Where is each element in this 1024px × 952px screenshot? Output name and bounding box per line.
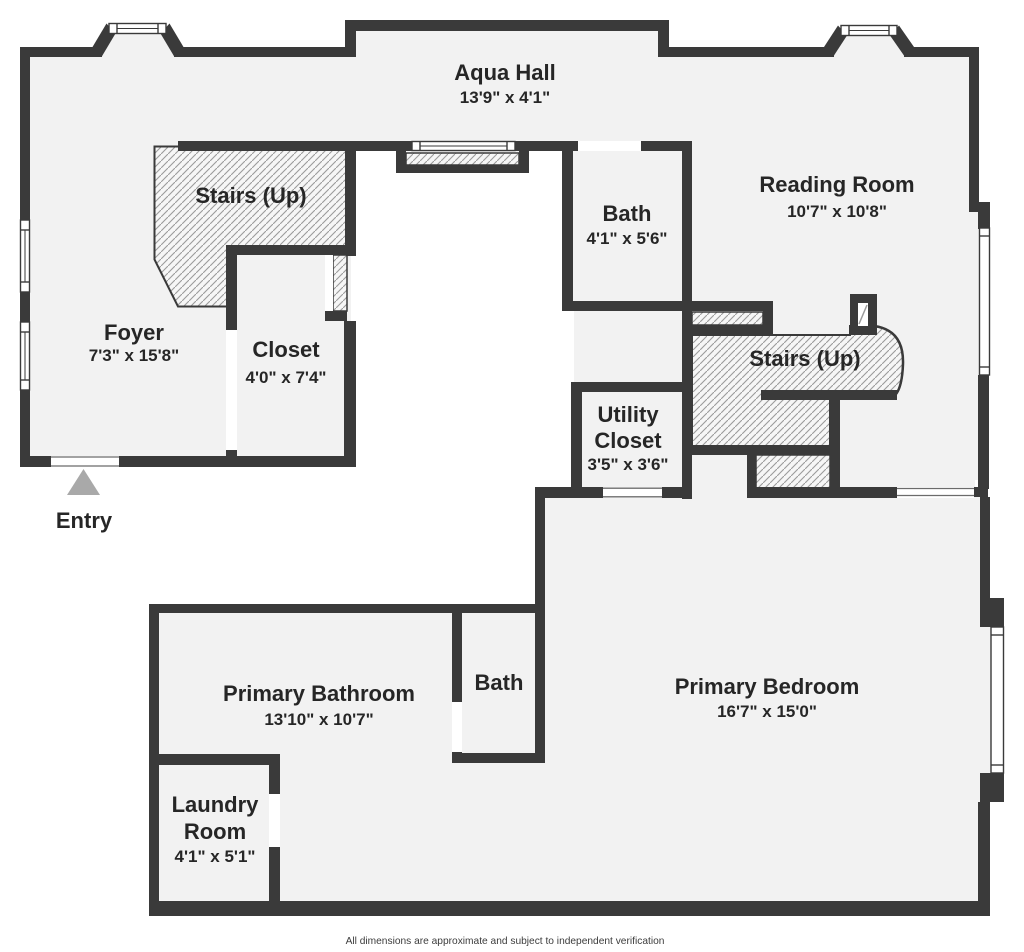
svg-text:Stairs (Up): Stairs (Up) (195, 183, 306, 208)
svg-text:Room: Room (184, 819, 246, 844)
svg-text:4'1" x 5'6": 4'1" x 5'6" (587, 229, 668, 248)
svg-text:7'3" x 15'8": 7'3" x 15'8" (89, 346, 179, 365)
svg-text:Bath: Bath (475, 670, 524, 695)
svg-text:Utility: Utility (597, 402, 659, 427)
svg-text:Primary Bathroom: Primary Bathroom (223, 681, 415, 706)
svg-text:16'7" x 15'0": 16'7" x 15'0" (717, 702, 817, 721)
svg-text:Bath: Bath (603, 201, 652, 226)
svg-text:All dimensions are approximate: All dimensions are approximate and subje… (346, 936, 665, 947)
svg-text:Entry: Entry (56, 508, 113, 533)
svg-text:Stairs (Up): Stairs (Up) (749, 346, 860, 371)
svg-text:4'0" x 7'4": 4'0" x 7'4" (246, 368, 327, 387)
svg-text:Primary Bedroom: Primary Bedroom (675, 674, 860, 699)
svg-text:13'9" x 4'1": 13'9" x 4'1" (460, 88, 550, 107)
svg-text:4'1" x 5'1": 4'1" x 5'1" (175, 847, 256, 866)
svg-text:3'5" x 3'6": 3'5" x 3'6" (588, 455, 669, 474)
svg-text:Reading Room: Reading Room (759, 172, 914, 197)
svg-text:Closet: Closet (594, 428, 662, 453)
svg-text:Closet: Closet (252, 337, 320, 362)
svg-text:Aqua Hall: Aqua Hall (454, 60, 555, 85)
svg-text:Laundry: Laundry (172, 792, 260, 817)
svg-text:Foyer: Foyer (104, 320, 164, 345)
svg-text:13'10" x 10'7": 13'10" x 10'7" (264, 710, 373, 729)
svg-text:10'7" x 10'8": 10'7" x 10'8" (787, 202, 887, 221)
